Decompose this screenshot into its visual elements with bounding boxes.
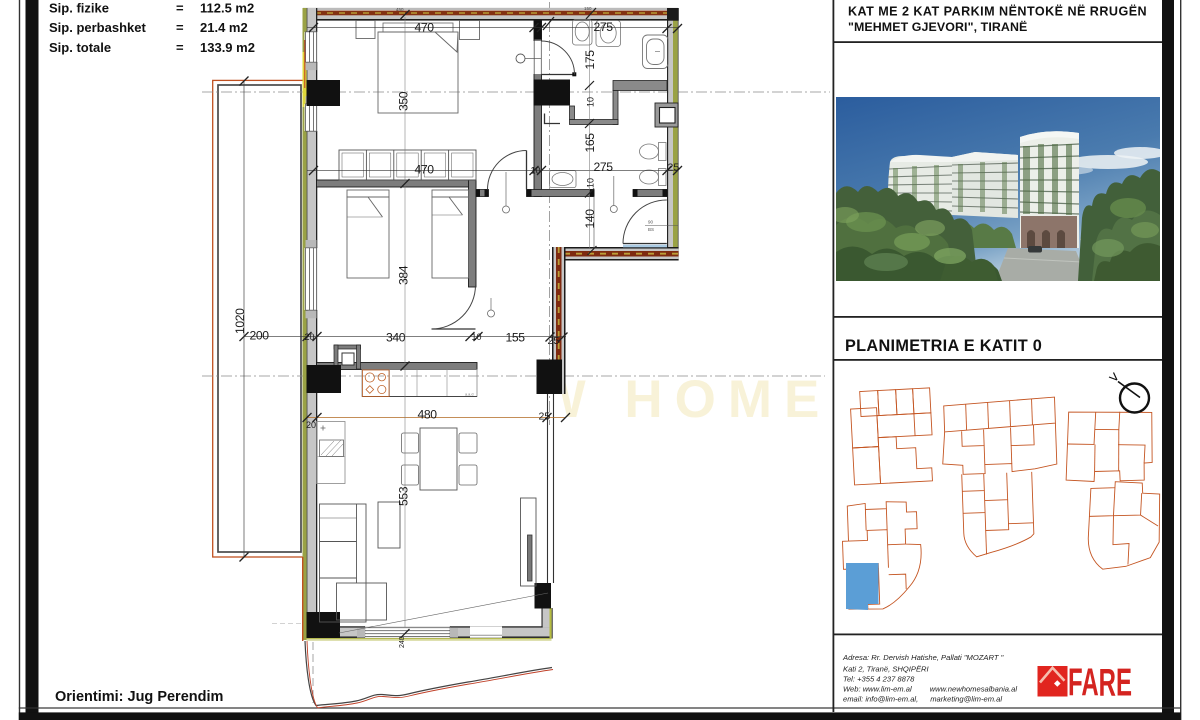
svg-text:1020: 1020 bbox=[233, 308, 247, 334]
svg-text:384: 384 bbox=[397, 265, 411, 285]
svg-text:a.a.d: a.a.d bbox=[465, 393, 473, 397]
svg-text:Sip. totale: Sip. totale bbox=[49, 40, 111, 55]
svg-text:=: = bbox=[176, 1, 184, 16]
svg-text:25: 25 bbox=[548, 335, 560, 347]
svg-text:10: 10 bbox=[586, 178, 596, 188]
svg-text:200: 200 bbox=[250, 329, 270, 343]
svg-text:Adresa: Rr. Dervish Hatishe,: Adresa: Rr. Dervish Hatishe, Pallati "MO… bbox=[842, 653, 1004, 662]
svg-text:140: 140 bbox=[583, 209, 597, 229]
svg-text:Tel: +355 4 237 8878: Tel: +355 4 237 8878 bbox=[843, 675, 915, 684]
svg-text:10: 10 bbox=[531, 166, 541, 176]
svg-text:112.5 m2: 112.5 m2 bbox=[200, 1, 254, 16]
svg-text:20: 20 bbox=[305, 332, 315, 342]
svg-text:340: 340 bbox=[386, 331, 406, 345]
svg-text:BS: BS bbox=[648, 227, 654, 232]
svg-text:FARE: FARE bbox=[1068, 662, 1132, 705]
svg-text:Kati 2, Tiranë, SHQIPËRI: Kati 2, Tiranë, SHQIPËRI bbox=[843, 665, 929, 674]
svg-text:450: 450 bbox=[396, 7, 404, 12]
svg-text:470: 470 bbox=[415, 21, 435, 35]
svg-text:275: 275 bbox=[594, 20, 614, 34]
svg-text:150: 150 bbox=[584, 6, 592, 11]
svg-text:10: 10 bbox=[472, 332, 482, 342]
svg-text:25: 25 bbox=[539, 411, 551, 423]
svg-text:21.4 m2: 21.4 m2 bbox=[200, 20, 248, 35]
svg-text:=: = bbox=[176, 20, 184, 35]
svg-text:470: 470 bbox=[415, 163, 435, 177]
svg-text:165: 165 bbox=[583, 133, 597, 153]
svg-text:480: 480 bbox=[418, 408, 438, 422]
svg-text:350: 350 bbox=[397, 91, 411, 111]
svg-text:553: 553 bbox=[397, 486, 411, 506]
svg-text:PLANIMETRIA E KATIT 0: PLANIMETRIA E KATIT 0 bbox=[845, 337, 1042, 355]
svg-text:155: 155 bbox=[506, 331, 526, 345]
svg-text:275: 275 bbox=[594, 160, 614, 174]
svg-text:25: 25 bbox=[668, 162, 680, 174]
svg-text:Sip. perbashket: Sip. perbashket bbox=[49, 20, 146, 35]
svg-text:"MEHMET GJEVORI", TIRANË: "MEHMET GJEVORI", TIRANË bbox=[848, 19, 1027, 34]
svg-text:240: 240 bbox=[399, 636, 406, 648]
svg-text:Sip. fizike: Sip. fizike bbox=[49, 1, 109, 16]
svg-text:133.9 m2: 133.9 m2 bbox=[200, 40, 255, 55]
svg-text:Web: www.lim-em.alwww.newhom: Web: www.lim-em.alwww.newhomesalbania.al bbox=[843, 685, 1017, 694]
svg-text:Orientimi: Jug Perendim: Orientimi: Jug Perendim bbox=[55, 689, 223, 705]
svg-text:KAT ME 2 KAT PARKIM NËNTOKË NË: KAT ME 2 KAT PARKIM NËNTOKË NË RRUGËN bbox=[848, 4, 1147, 19]
svg-text:175: 175 bbox=[583, 50, 597, 70]
svg-text:10: 10 bbox=[586, 97, 596, 107]
svg-text:90: 90 bbox=[648, 220, 654, 225]
svg-text:20: 20 bbox=[306, 420, 316, 430]
svg-text:=: = bbox=[176, 40, 184, 55]
